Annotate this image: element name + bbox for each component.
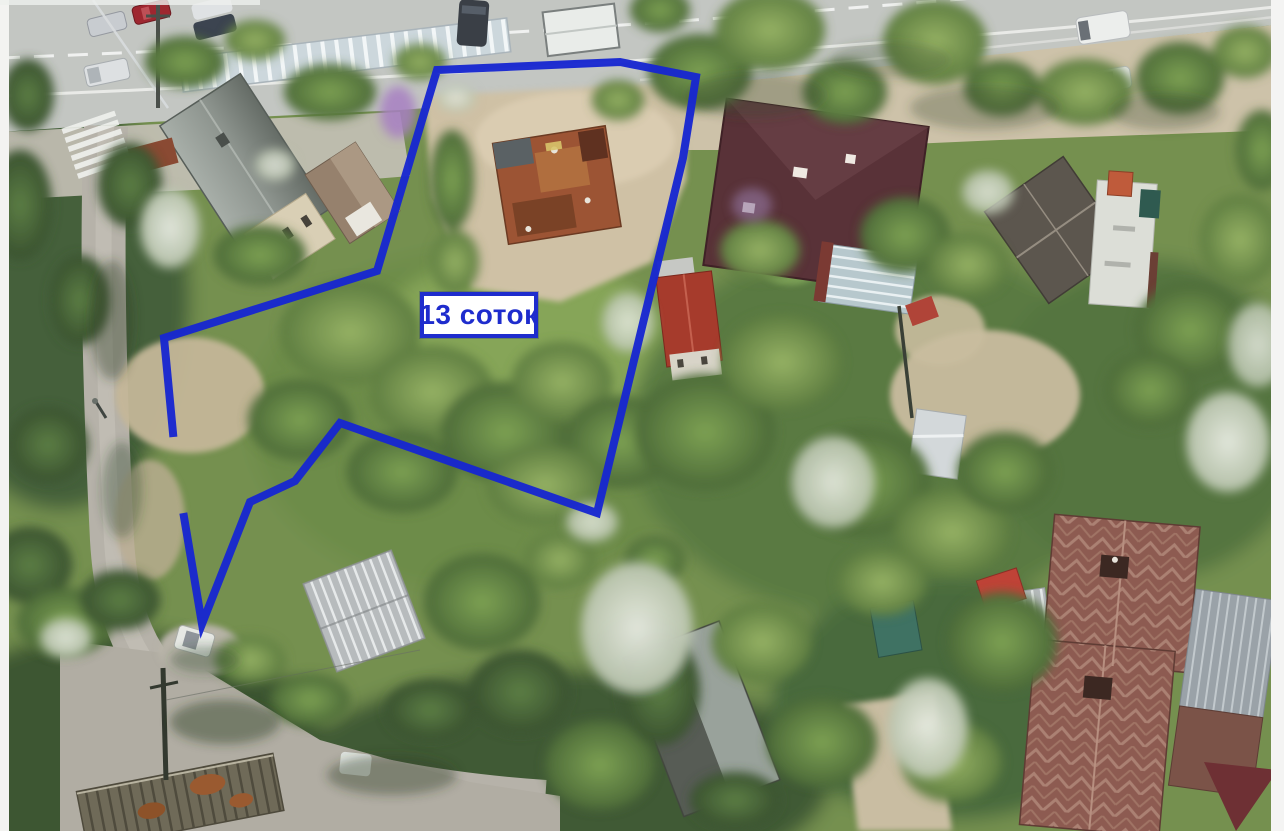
aerial-photo	[0, 0, 1284, 831]
lilac-tree	[380, 86, 416, 138]
van-dark	[456, 0, 489, 47]
building-white-topright	[1089, 170, 1164, 308]
house-rusty-roof-plot	[493, 126, 622, 245]
aerial-photo-canvas: 13 соток	[0, 0, 1284, 831]
bus-shelter	[543, 4, 620, 56]
plot-area-label-text: 13 соток	[419, 299, 538, 331]
plot-area-label: 13 соток	[420, 292, 538, 338]
